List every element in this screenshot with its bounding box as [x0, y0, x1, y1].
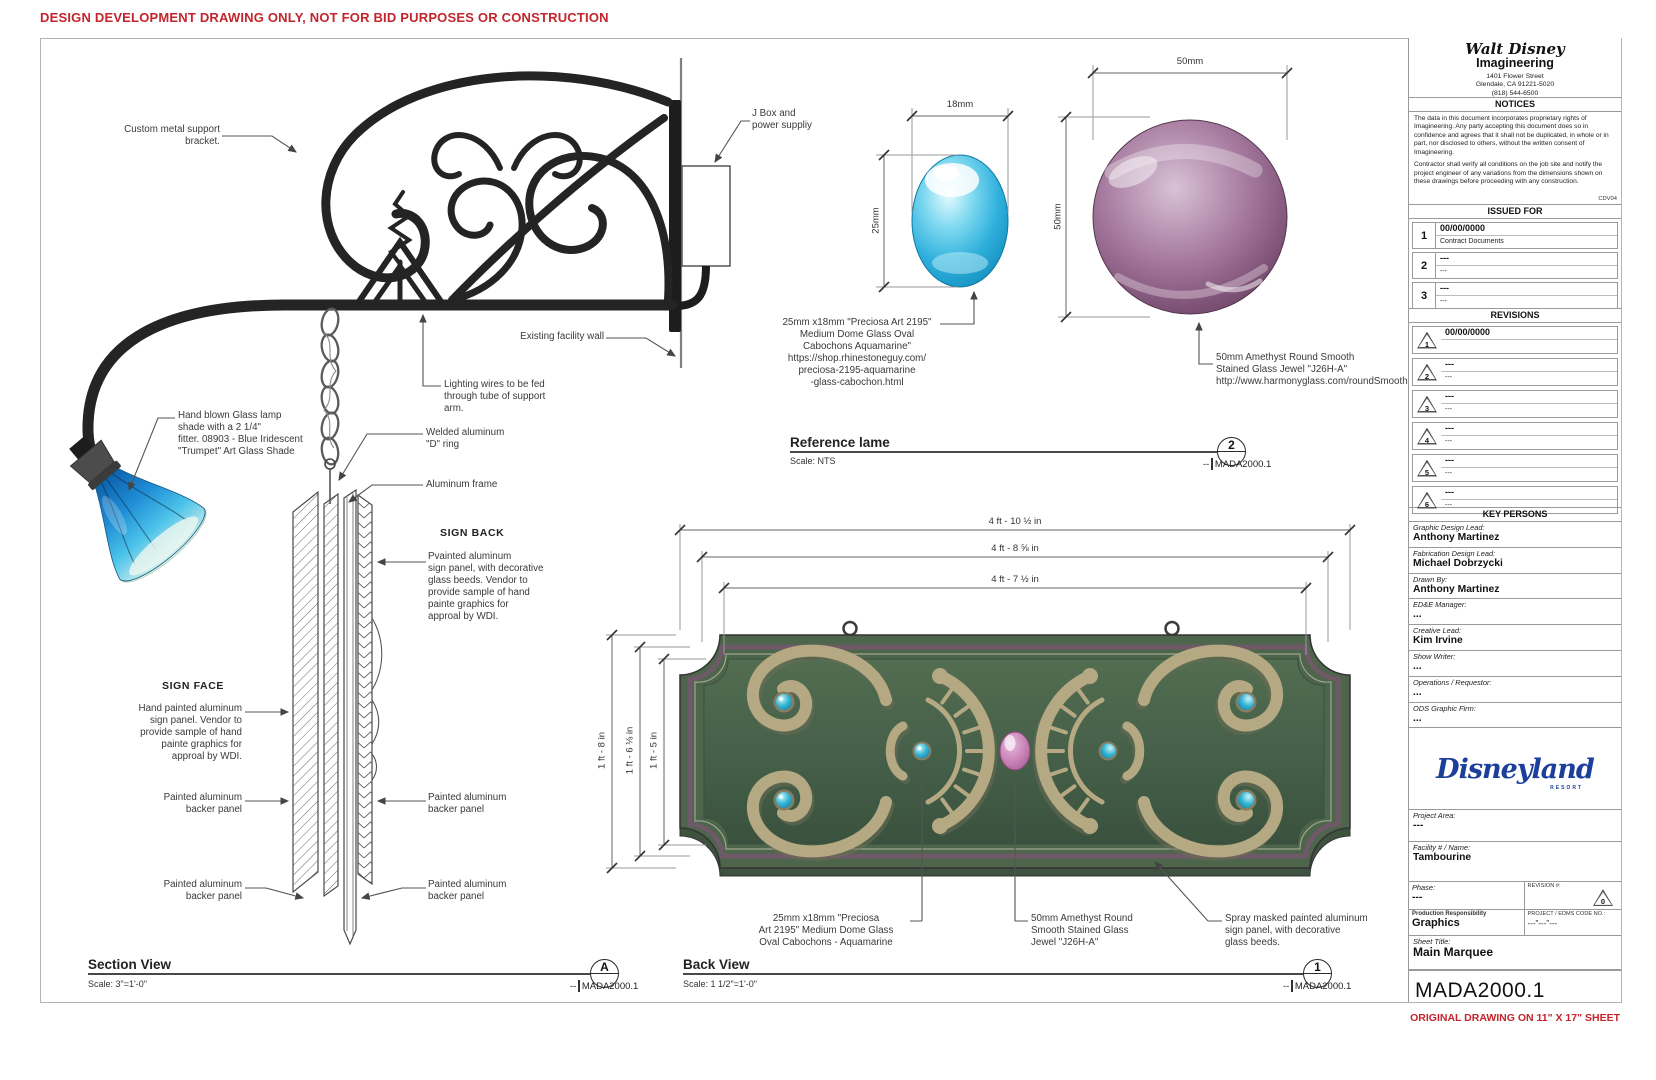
- warning-banner: DESIGN DEVELOPMENT DRAWING ONLY, NOT FOR…: [40, 10, 609, 25]
- back-spray-caption: Spray masked painted aluminum sign panel…: [1225, 913, 1368, 949]
- sheet-number: MADA2000.1: [1409, 970, 1621, 1014]
- section-view-scale: Scale: 3"=1'-0": [88, 979, 147, 989]
- disneyland-logo-text: Disneyland: [1436, 754, 1594, 785]
- ref-number: MADA2000.1: [1295, 981, 1352, 992]
- drawing-sheet: DESIGN DEVELOPMENT DRAWING ONLY, NOT FOR…: [0, 0, 1656, 1080]
- revision-date: 00/00/0000: [1441, 327, 1617, 340]
- revisions-rows: 1 00/00/0000 2 --- --- 3 --- --- 4 --- -…: [1409, 323, 1621, 507]
- issued-date: ---: [1436, 253, 1617, 266]
- callout-backer-left-2: Painted aluminum backer panel: [128, 879, 242, 903]
- jewel-width-dim: 50mm: [1150, 56, 1230, 67]
- phase-label: Phase:: [1412, 883, 1521, 892]
- revision-date: ---: [1441, 423, 1617, 436]
- back-width-mid-dim: 4 ft - 8 ⅝ in: [915, 543, 1115, 554]
- issued-row: 3 --- ---: [1412, 282, 1618, 309]
- ref-tick: [1211, 458, 1213, 470]
- production-value: Graphics: [1412, 917, 1521, 929]
- person-row: Show Writer: ...: [1409, 651, 1621, 677]
- jewel-caption: 50mm Amethyst Round Smooth Stained Glass…: [1216, 352, 1434, 388]
- revision-triangle-icon: 6: [1417, 492, 1437, 509]
- issued-date: ---: [1436, 283, 1617, 296]
- wdi-logo-script: Walt Disney: [1409, 42, 1621, 57]
- edms-code-label: PROJECT / EDMS CODE NO.:: [1528, 911, 1618, 917]
- back-cabochon-caption: 25mm x18mm "Preciosa Art 2195" Medium Do…: [745, 913, 907, 949]
- back-view-scale: Scale: 1 1/2"=1'-0": [683, 979, 757, 989]
- issued-num: 2: [1413, 253, 1436, 278]
- section-view-marker-letter: A: [591, 960, 618, 974]
- revision-number-cell: REVISION #: 0: [1524, 882, 1621, 909]
- phase-cell: Phase: ---: [1409, 882, 1524, 909]
- person-value: Kim Irvine: [1413, 635, 1617, 646]
- person-row: Creative Lead: Kim Irvine: [1409, 625, 1621, 651]
- edms-code-value: ---"---"---: [1528, 919, 1618, 928]
- revision-triangle-icon: 4: [1417, 428, 1437, 445]
- production-code-row: Production Responsibility Graphics PROJE…: [1409, 910, 1621, 936]
- person-value: ...: [1413, 609, 1617, 620]
- revision-desc: ---: [1441, 404, 1617, 413]
- callout-bracket: Custom metal support bracket.: [108, 124, 220, 148]
- person-row: Graphic Design Lead: Anthony Martinez: [1409, 522, 1621, 548]
- ref-dashes: --: [570, 981, 576, 992]
- person-label: Drawn By:: [1413, 575, 1617, 584]
- wdi-address: 1401 Flower Street Glendale, CA 91221-50…: [1409, 73, 1621, 98]
- callout-shade: Hand blown Glass lamp shade with a 2 1/4…: [178, 410, 303, 458]
- project-area-label: Project Area:: [1413, 811, 1617, 820]
- title-block: Walt Disney Imagineering 1401 Flower Str…: [1408, 38, 1621, 1002]
- callout-wall: Existing facility wall: [496, 331, 604, 343]
- facility-value: Tambourine: [1413, 852, 1617, 863]
- production-cell: Production Responsibility Graphics: [1409, 910, 1524, 935]
- ref-tick: [1291, 980, 1293, 992]
- edms-code-cell: PROJECT / EDMS CODE NO.: ---"---"---: [1524, 910, 1621, 935]
- wdi-logo: Walt Disney Imagineering 1401 Flower Str…: [1409, 38, 1621, 98]
- issued-date: 00/00/0000: [1436, 223, 1617, 236]
- cabochon-width-dim: 18mm: [920, 99, 1000, 110]
- issued-for-header: ISSUED FOR: [1409, 204, 1621, 219]
- ref-dashes: --: [1283, 981, 1289, 992]
- cabochon-height-dim: 25mm: [871, 166, 882, 276]
- callout-sign-face: Hand painted aluminum sign panel. Vendor…: [110, 703, 242, 763]
- heading-sign-face: SIGN FACE: [140, 680, 224, 692]
- revision-desc: ---: [1441, 436, 1617, 445]
- back-width-inner-dim: 4 ft - 7 ½ in: [915, 574, 1115, 585]
- person-label: Creative Lead:: [1413, 626, 1617, 635]
- phase-value: ---: [1412, 892, 1521, 903]
- issued-num: 3: [1413, 283, 1436, 308]
- notice-paragraph-2: Contractor shall verify all conditions o…: [1414, 161, 1616, 186]
- person-value: ...: [1413, 687, 1617, 698]
- section-view-title: Section View: [88, 957, 171, 972]
- issued-desc: ---: [1436, 266, 1617, 275]
- disneyland-logo: Disneyland RESORT: [1409, 729, 1621, 810]
- issued-num: 1: [1413, 223, 1436, 248]
- back-jewel-caption: 50mm Amethyst Round Smooth Stained Glass…: [1031, 913, 1133, 949]
- cabochon-caption: 25mm x18mm "Preciosa Art 2195" Medium Do…: [768, 317, 946, 389]
- back-width-outer-dim: 4 ft - 10 ½ in: [915, 516, 1115, 527]
- person-row: ODS Graphic Firm: ...: [1409, 703, 1621, 729]
- callout-jbox: J Box and power suppliy: [752, 108, 812, 132]
- ref-tick: [578, 980, 580, 992]
- person-value: Michael Dobrzycki: [1413, 558, 1617, 569]
- project-area-row: Project Area: ---: [1409, 810, 1621, 842]
- callout-backer-right-1: Painted aluminum backer panel: [428, 792, 506, 816]
- reference-view-title: Reference lame: [790, 435, 890, 450]
- phase-revision-row: Phase: --- REVISION #: 0: [1409, 882, 1621, 910]
- revision-desc: ---: [1441, 468, 1617, 477]
- callout-backer-left-1: Painted aluminum backer panel: [128, 792, 242, 816]
- callout-backer-right-2: Painted aluminum backer panel: [428, 879, 506, 903]
- back-height-inner-dim: 1 ft - 5 in: [649, 696, 660, 806]
- ref-number: MADA2000.1: [582, 981, 639, 992]
- revision-desc: ---: [1441, 372, 1617, 381]
- heading-sign-back: SIGN BACK: [440, 527, 504, 539]
- issued-row: 1 00/00/0000 Contract Documents: [1412, 222, 1618, 249]
- person-row: ED&E Manager: ...: [1409, 599, 1621, 625]
- person-value: Anthony Martinez: [1413, 532, 1617, 543]
- issued-desc: ---: [1436, 296, 1617, 305]
- back-height-mid-dim: 1 ft - 6 ⅛ in: [625, 696, 636, 806]
- revision-number-triangle-icon: 0: [1593, 889, 1613, 906]
- person-row: Drawn By: Anthony Martinez: [1409, 574, 1621, 600]
- back-view-title: Back View: [683, 957, 750, 972]
- disneyland-logo-resort: RESORT: [1550, 785, 1583, 791]
- person-label: ED&E Manager:: [1413, 600, 1617, 609]
- revisions-header: REVISIONS: [1409, 308, 1621, 323]
- sheet-title-row: Sheet Title: Main Marquee: [1409, 936, 1621, 970]
- revision-date: ---: [1441, 359, 1617, 372]
- revision-desc: [1441, 340, 1617, 342]
- person-label: Show Writer:: [1413, 652, 1617, 661]
- wdi-logo-sub: Imagineering: [1409, 57, 1621, 71]
- person-label: Graphic Design Lead:: [1413, 523, 1617, 532]
- section-view-sheet-ref: -- MADA2000.1: [570, 980, 638, 992]
- revision-date: ---: [1441, 455, 1617, 468]
- revision-triangle-icon: 1: [1417, 332, 1437, 349]
- person-row: Operations / Requestor: ...: [1409, 677, 1621, 703]
- revision-triangle-icon: 3: [1417, 396, 1437, 413]
- notice-paragraph-1: The data in this document incorporates p…: [1414, 115, 1616, 157]
- revision-row: 4 --- ---: [1412, 422, 1618, 450]
- ref-number: MADA2000.1: [1215, 459, 1272, 470]
- reference-view-marker-number: 2: [1218, 438, 1245, 452]
- ref-dashes: --: [1203, 459, 1209, 470]
- back-view-sheet-ref: -- MADA2000.1: [1283, 980, 1351, 992]
- revision-row: 5 --- ---: [1412, 454, 1618, 482]
- revision-row: 1 00/00/0000: [1412, 326, 1618, 354]
- person-label: ODS Graphic Firm:: [1413, 704, 1617, 713]
- callout-sign-back: Pvainted aluminum sign panel, with decor…: [428, 551, 543, 623]
- callout-aluminum-frame: Aluminum frame: [426, 479, 497, 491]
- revision-triangle-icon: 5: [1417, 460, 1437, 477]
- person-value: ...: [1413, 713, 1617, 724]
- revision-row: 2 --- ---: [1412, 358, 1618, 386]
- facility-row: Facility # / Name: Tambourine: [1409, 842, 1621, 882]
- notice-code: CDV04: [1598, 196, 1617, 202]
- notices-header: NOTICES: [1409, 98, 1621, 112]
- person-row: Fabrication Design Lead: Michael Dobrzyc…: [1409, 548, 1621, 574]
- project-area-value: ---: [1413, 820, 1617, 831]
- key-persons-rows: Graphic Design Lead: Anthony Martinez Fa…: [1409, 522, 1621, 729]
- issued-for-rows: 1 00/00/0000 Contract Documents 2 --- --…: [1409, 219, 1621, 308]
- facility-label: Facility # / Name:: [1413, 843, 1617, 852]
- jewel-height-dim: 50mm: [1053, 162, 1064, 272]
- back-height-outer-dim: 1 ft - 8 in: [597, 696, 608, 806]
- callout-wires: Lighting wires to be fed through tube of…: [444, 379, 545, 415]
- original-size-note: ORIGINAL DRAWING ON 11" X 17" SHEET: [1410, 1012, 1620, 1024]
- revision-row: 3 --- ---: [1412, 390, 1618, 418]
- issued-desc: Contract Documents: [1436, 236, 1617, 245]
- revision-date: ---: [1441, 487, 1617, 500]
- revision-date: ---: [1441, 391, 1617, 404]
- back-view-marker-number: 1: [1304, 960, 1331, 974]
- revision-triangle-icon: 2: [1417, 364, 1437, 381]
- person-value: Anthony Martinez: [1413, 584, 1617, 595]
- issued-row: 2 --- ---: [1412, 252, 1618, 279]
- reference-view-scale: Scale: NTS: [790, 456, 836, 466]
- person-value: ...: [1413, 661, 1617, 672]
- notices-body: The data in this document incorporates p…: [1409, 112, 1621, 204]
- sheet-border: [40, 38, 1622, 1003]
- callout-d-ring: Welded aluminum "D" ring: [426, 427, 504, 451]
- person-label: Fabrication Design Lead:: [1413, 549, 1617, 558]
- sheet-title-value: Main Marquee: [1413, 946, 1617, 959]
- person-label: Operations / Requestor:: [1413, 678, 1617, 687]
- reference-view-sheet-ref: -- MADA2000.1: [1203, 458, 1271, 470]
